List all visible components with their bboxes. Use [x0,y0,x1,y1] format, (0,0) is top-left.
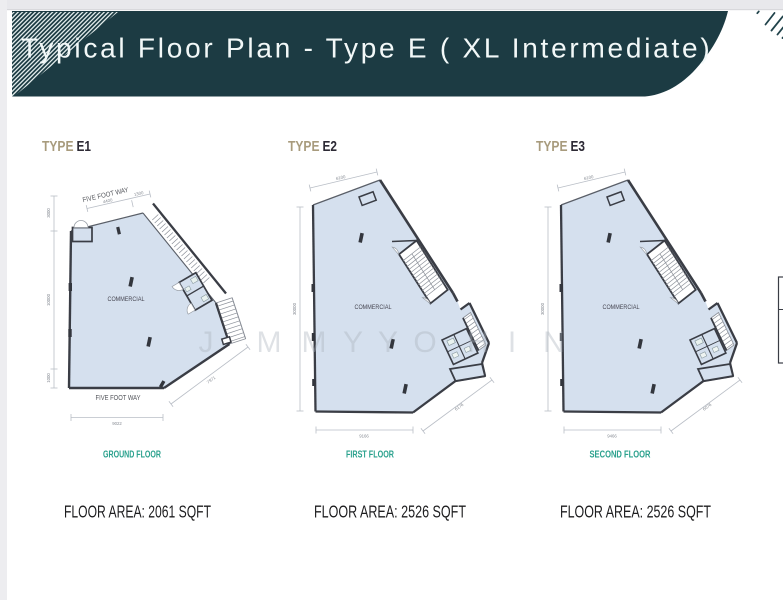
svg-text:FIRST FLOOR: FIRST FLOOR [346,450,394,461]
svg-text:COMMERCIAL: COMMERCIAL [355,304,392,311]
svg-text:9022: 9022 [112,421,122,426]
svg-text:COMMERCIAL: COMMERCIAL [108,296,145,303]
svg-text:E2: E2 [323,138,338,155]
svg-text:FIVE FOOT WAY: FIVE FOOT WAY [96,395,141,402]
svg-text:FLOOR AREA: 2526 SQFT: FLOOR AREA: 2526 SQFT [314,502,466,522]
svg-text:H: H [467,326,489,359]
svg-text:I: I [508,326,516,359]
svg-text:E3: E3 [571,138,586,155]
svg-text:9466: 9466 [607,434,617,439]
svg-text:9166: 9166 [359,434,369,439]
svg-text:30000: 30000 [540,302,545,315]
svg-text:M: M [257,326,282,359]
svg-text:FLOOR AREA: 2061 SQFT: FLOOR AREA: 2061 SQFT [64,502,211,522]
svg-text:SECOND FLOOR: SECOND FLOOR [590,450,651,461]
svg-text:TYPE: TYPE [288,138,320,155]
svg-text:Y: Y [378,326,398,359]
svg-text:J: J [199,326,214,359]
svg-text:O: O [413,326,436,359]
svg-text:1000: 1000 [46,373,51,383]
svg-text:TYPE: TYPE [536,138,568,155]
svg-text:M: M [302,326,327,359]
svg-text:30000: 30000 [292,302,297,315]
svg-text:E1: E1 [77,138,92,155]
svg-text:GROUND FLOOR: GROUND FLOOR [103,450,161,461]
svg-text:10000: 10000 [46,293,51,306]
svg-text:3000: 3000 [46,208,51,218]
svg-text:COMMERCIAL: COMMERCIAL [603,304,640,311]
svg-text:FLOOR AREA: 2526 SQFT: FLOOR AREA: 2526 SQFT [560,502,711,522]
svg-text:Y: Y [343,326,363,359]
svg-text:N: N [543,326,565,359]
svg-text:Typical Floor Plan - Type E (: Typical Floor Plan - Type E ( XL Interme… [21,33,712,64]
svg-text:TYPE: TYPE [42,138,74,155]
